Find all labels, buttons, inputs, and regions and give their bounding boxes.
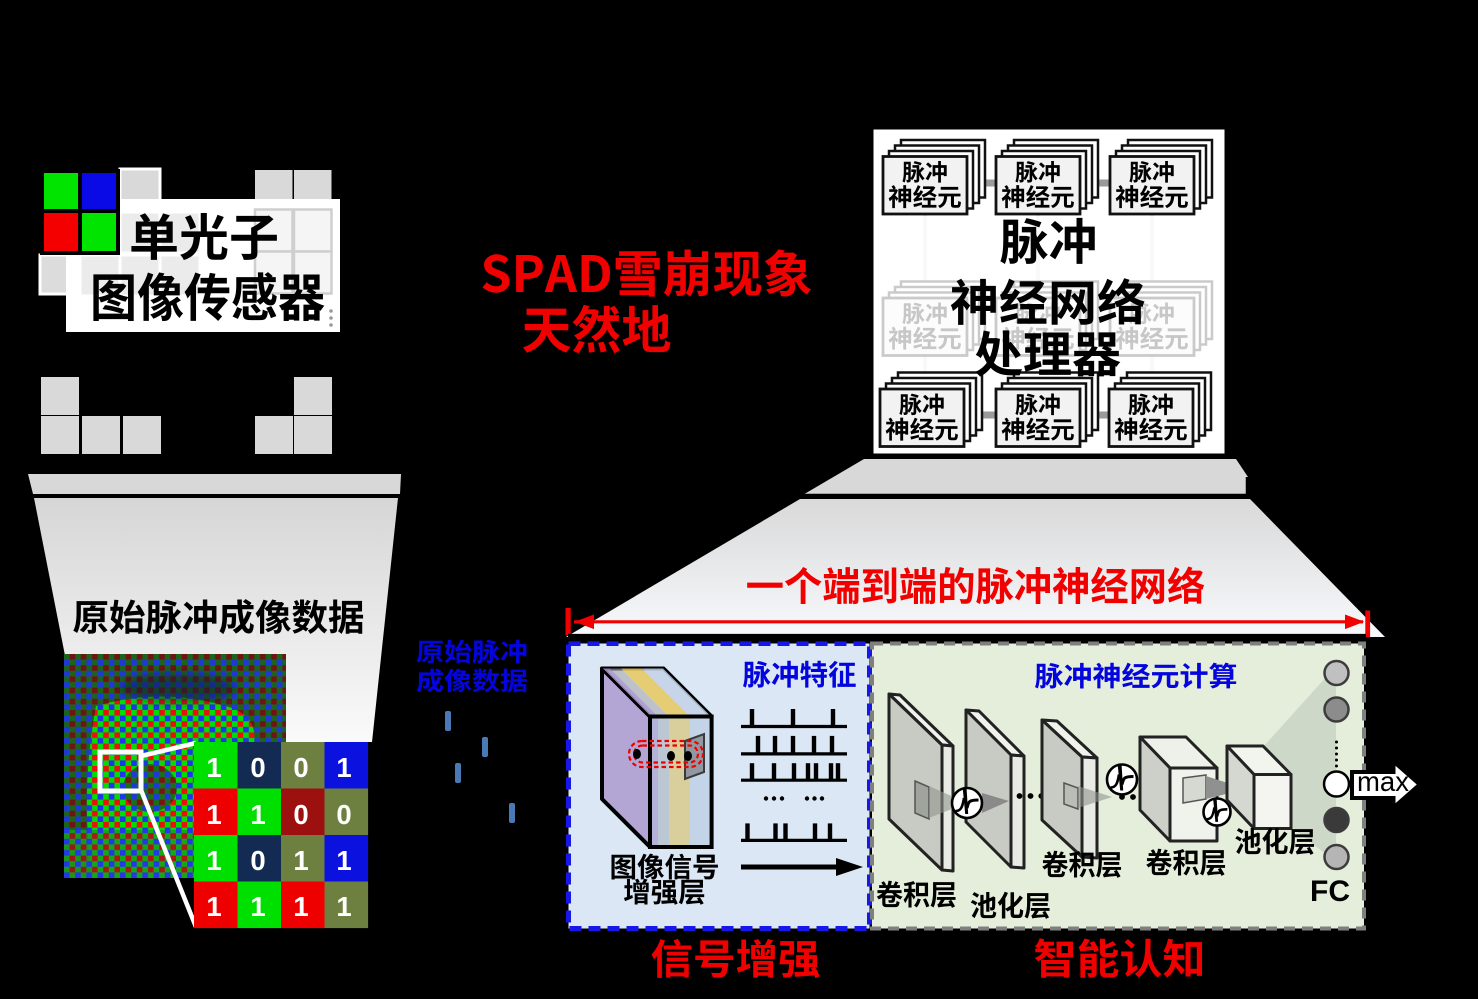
svg-text:1: 1 xyxy=(293,845,308,876)
svg-text:1: 1 xyxy=(336,891,351,922)
svg-text:1: 1 xyxy=(250,799,265,830)
svg-text:FC: FC xyxy=(1310,875,1350,908)
svg-text:0: 0 xyxy=(293,799,308,830)
svg-text:1: 1 xyxy=(206,799,221,830)
svg-text:1: 1 xyxy=(336,845,351,876)
svg-text:1: 1 xyxy=(206,891,221,922)
svg-text:1: 1 xyxy=(336,752,351,783)
svg-text:0: 0 xyxy=(250,845,265,876)
svg-text:1: 1 xyxy=(293,891,308,922)
svg-text:1: 1 xyxy=(206,845,221,876)
svg-text:1: 1 xyxy=(206,752,221,783)
svg-text:0: 0 xyxy=(250,752,265,783)
svg-text:0: 0 xyxy=(293,752,308,783)
svg-text:max: max xyxy=(1357,766,1409,797)
svg-text:0: 0 xyxy=(336,799,351,830)
svg-text:1: 1 xyxy=(250,891,265,922)
